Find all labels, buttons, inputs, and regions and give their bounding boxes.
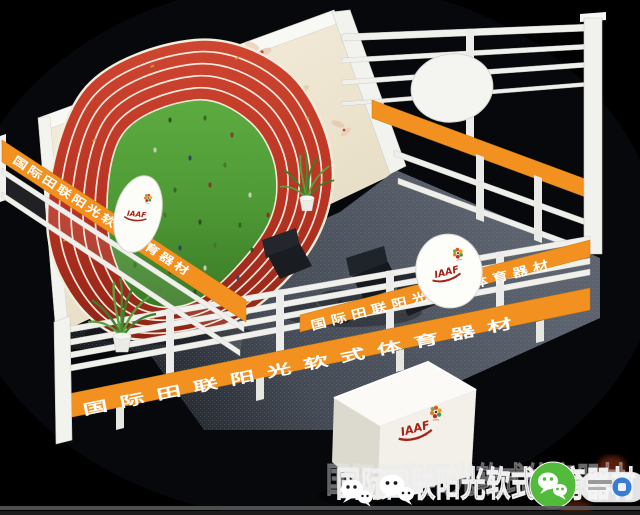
wechat-badge-pill [580,472,640,502]
far-right-post [584,18,602,254]
athlete-figure [163,212,166,217]
athlete-figure [266,212,269,217]
watermark: 国际田联阳光软式体育器材 国际田联阳光软式体育器材 [326,461,640,508]
athlete-figure [248,192,251,197]
athlete-figure [250,247,253,252]
bottom-edge [0,511,640,515]
wechat-green-icon [530,462,576,508]
bottom-divider [0,506,640,510]
athlete-figure [208,182,211,187]
athlete-figure [203,115,206,120]
athlete-figure [203,265,206,270]
athlete-figure [168,117,171,122]
athlete-figure [153,147,156,152]
athlete-figure [173,187,176,192]
athlete-figure [236,275,239,280]
athlete-figure [198,219,201,224]
athlete-figure [230,132,233,137]
athlete-figure [213,242,216,247]
athlete-figure [178,245,181,250]
athlete-figure [223,162,226,167]
front-left-post [54,316,72,444]
athlete-figure [188,155,191,160]
athlete-figure [238,222,241,227]
booth-render-stage: IAAF [0,0,640,515]
booth-render: IAAF [0,0,640,515]
